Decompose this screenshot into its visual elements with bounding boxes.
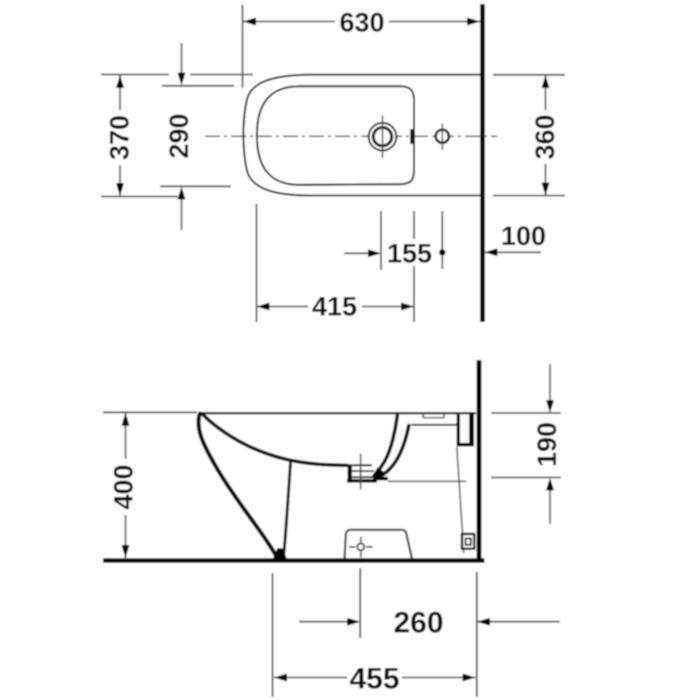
- svg-text:455: 455: [349, 663, 399, 696]
- svg-text:190: 190: [532, 422, 562, 467]
- svg-text:415: 415: [312, 292, 357, 322]
- svg-text:630: 630: [339, 8, 384, 38]
- svg-text:400: 400: [109, 464, 139, 509]
- svg-text:360: 360: [530, 114, 560, 159]
- svg-text:155: 155: [387, 239, 432, 269]
- svg-text:290: 290: [164, 113, 194, 158]
- svg-text:370: 370: [105, 115, 135, 160]
- svg-text:100: 100: [501, 221, 546, 251]
- svg-text:260: 260: [393, 607, 443, 640]
